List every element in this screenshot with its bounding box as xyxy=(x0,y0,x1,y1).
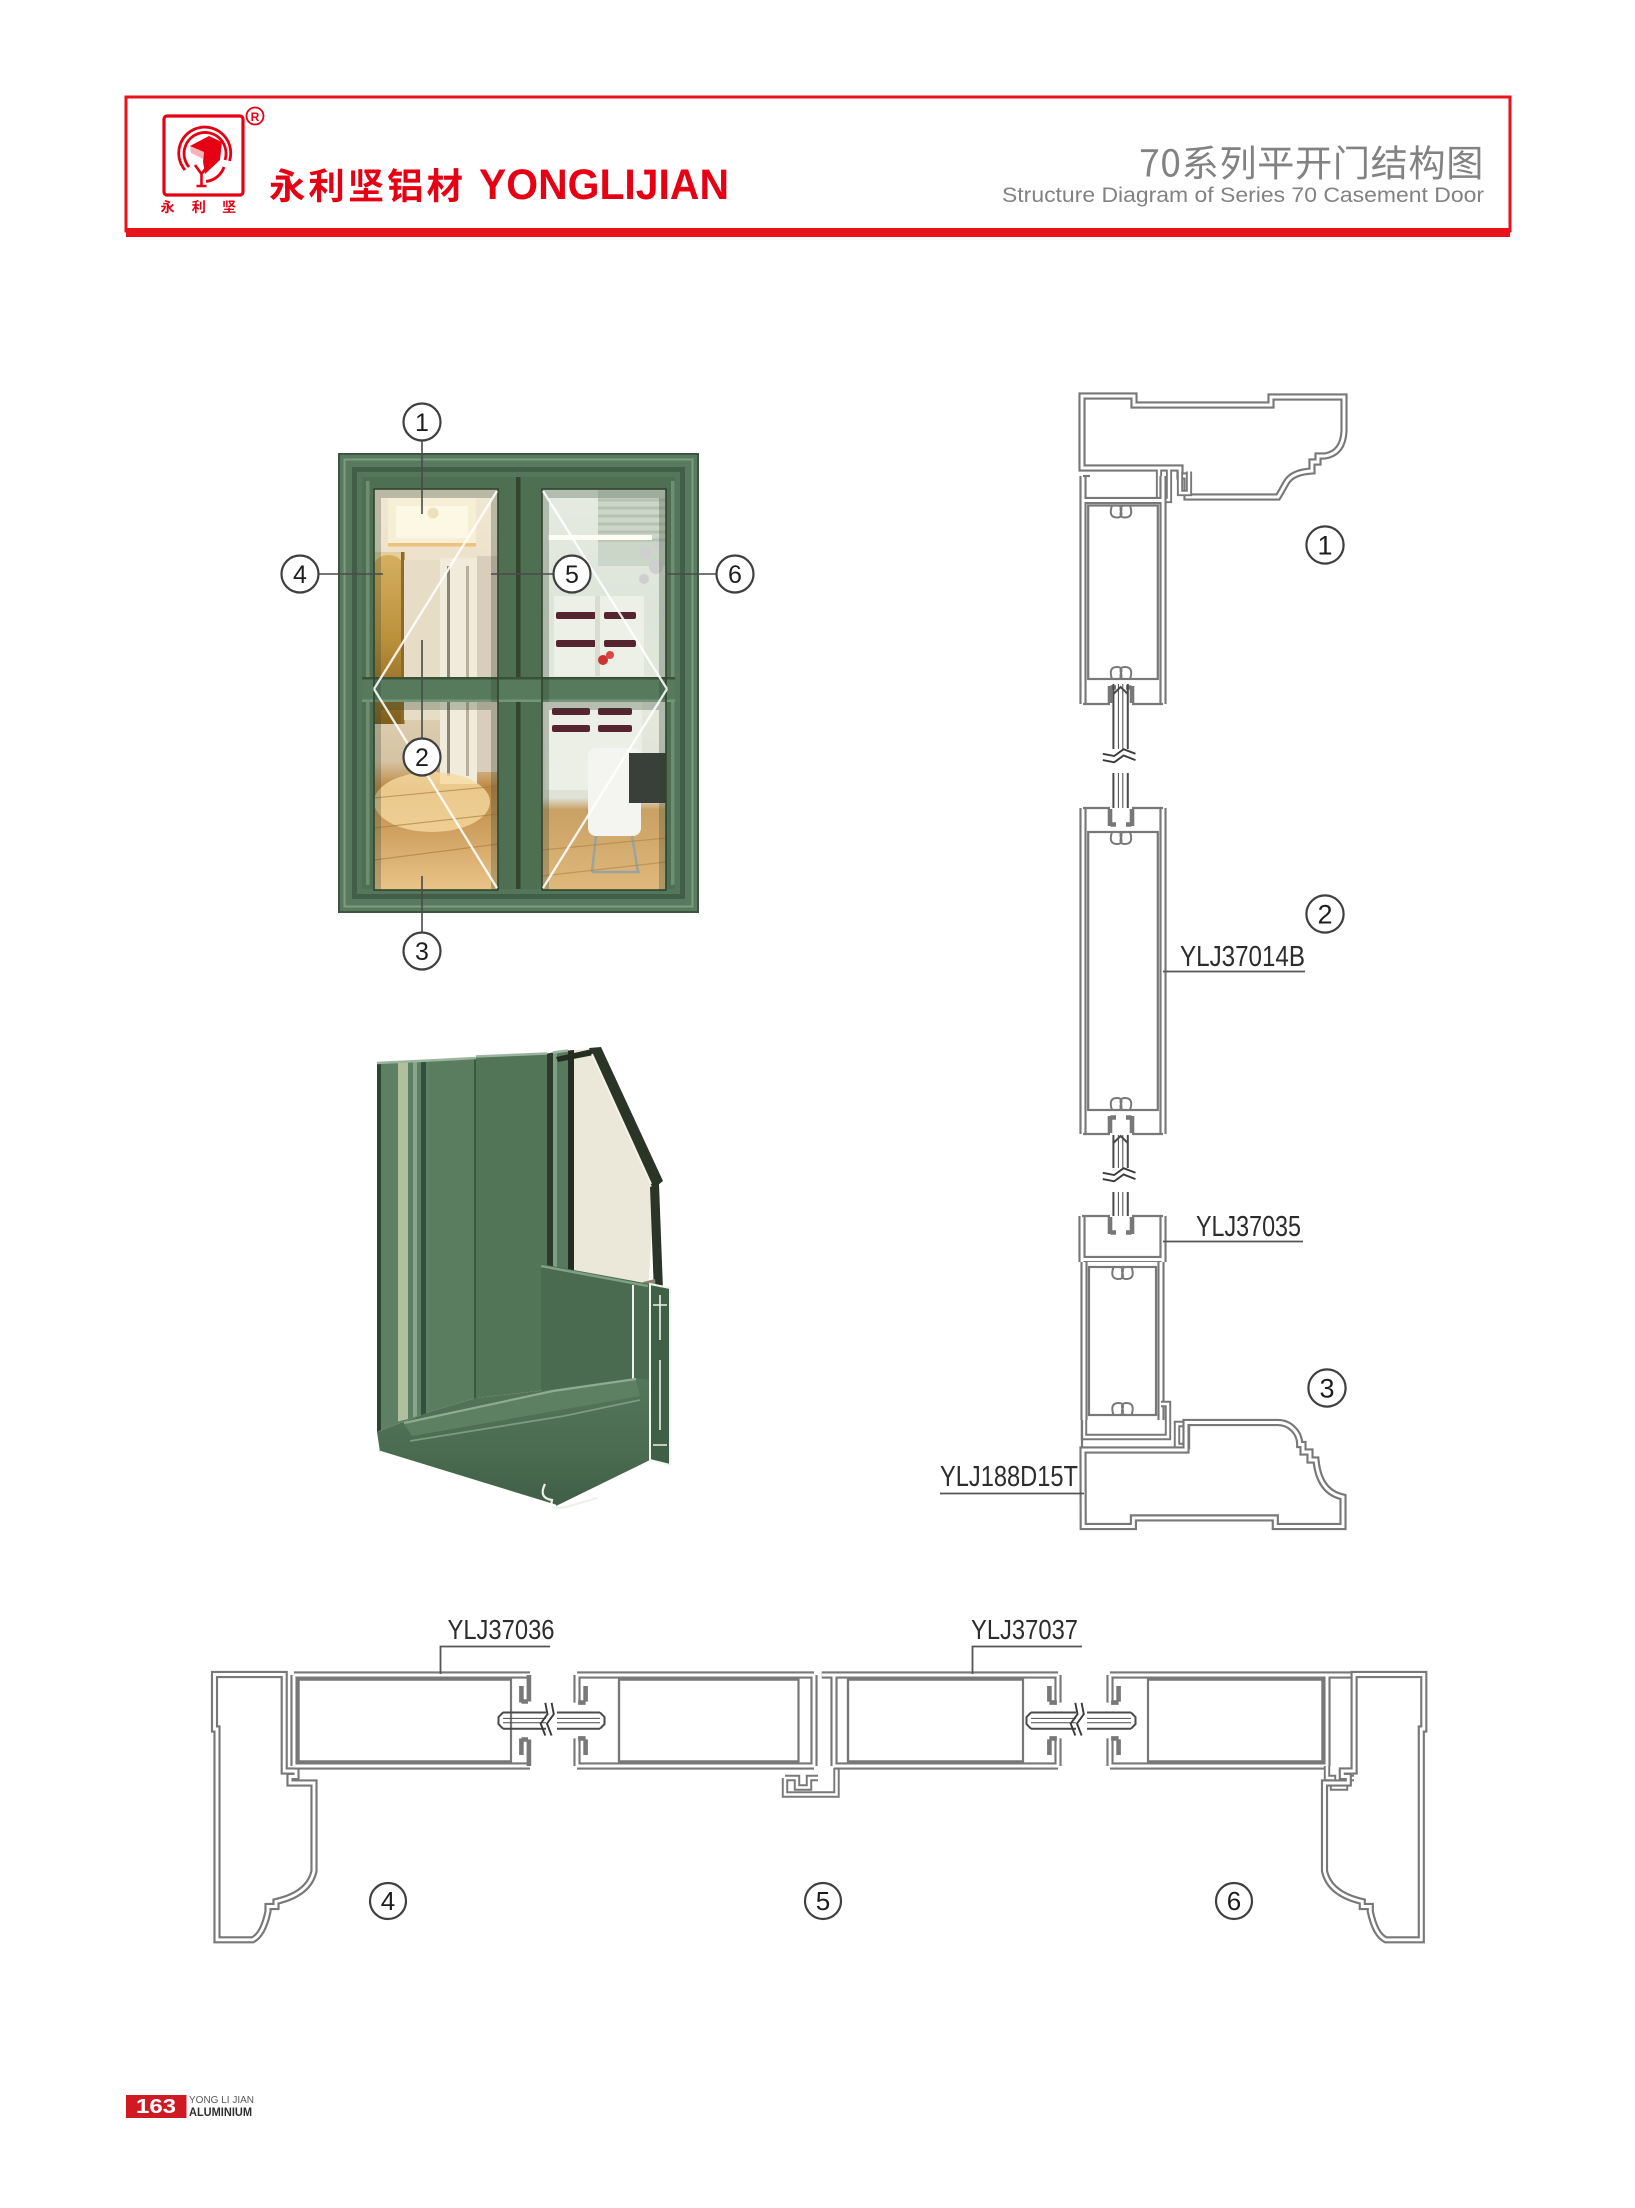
svg-text:4: 4 xyxy=(293,561,307,589)
svg-text:YONG LI JIAN: YONG LI JIAN xyxy=(189,2094,254,2106)
svg-text:YLJ37035: YLJ37035 xyxy=(1196,1211,1301,1243)
svg-text:5: 5 xyxy=(816,1886,830,1916)
svg-text:YLJ37037: YLJ37037 xyxy=(971,1614,1078,1645)
svg-text:1: 1 xyxy=(1317,530,1332,560)
svg-text:ALUMINIUM: ALUMINIUM xyxy=(189,2107,252,2119)
svg-text:4: 4 xyxy=(381,1886,395,1916)
svg-text:5: 5 xyxy=(565,561,579,589)
svg-text:1: 1 xyxy=(415,409,429,437)
svg-text:YLJ37036: YLJ37036 xyxy=(448,1614,555,1645)
svg-text:6: 6 xyxy=(1227,1886,1241,1916)
svg-text:YLJ188D15T: YLJ188D15T xyxy=(940,1461,1078,1493)
svg-text:6: 6 xyxy=(728,561,742,589)
svg-text:2: 2 xyxy=(415,744,429,772)
svg-text:3: 3 xyxy=(1319,1373,1334,1403)
svg-text:YONGLIJIAN: YONGLIJIAN xyxy=(479,162,729,209)
svg-text:Structure Diagram of Series 70: Structure Diagram of Series 70 Casement … xyxy=(1002,183,1484,207)
svg-text:3: 3 xyxy=(415,938,429,966)
svg-text:2: 2 xyxy=(1317,899,1332,929)
svg-text:R: R xyxy=(251,110,260,124)
svg-text:163: 163 xyxy=(136,2096,176,2118)
svg-text:YLJ37014B: YLJ37014B xyxy=(1180,941,1305,973)
